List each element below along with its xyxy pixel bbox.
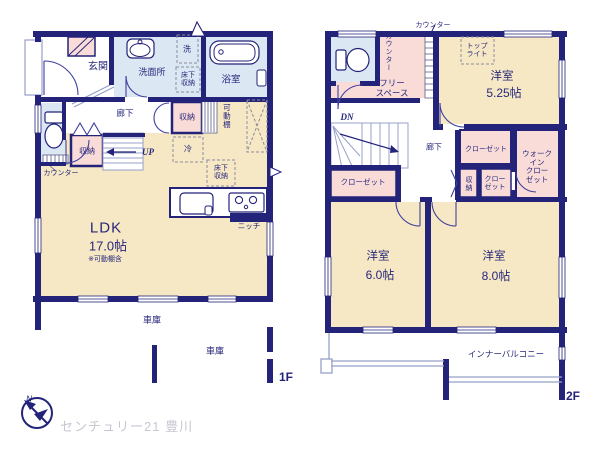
room-label-garage-front: 車庫 bbox=[206, 346, 224, 356]
stairs-up bbox=[103, 133, 143, 170]
floor-tag-1f: 1F bbox=[279, 371, 293, 385]
label-bedroom-525-size: 5.25帖 bbox=[486, 87, 521, 101]
label-toilet-counter: カウンター bbox=[44, 170, 79, 178]
room-label-washroom: 洗面所 bbox=[138, 67, 165, 77]
room-label-inner-balcony: インナーバルコニー bbox=[468, 350, 544, 360]
entrance-porch bbox=[25, 40, 42, 95]
label-fridge: 冷 bbox=[184, 144, 192, 153]
room-label-bedroom-525: 洋室 bbox=[491, 70, 514, 83]
label-storage-2f: 収納 bbox=[464, 176, 472, 192]
label-storage-hall: 収納 bbox=[79, 146, 95, 155]
label-ldk-note: ※可動棚含 bbox=[88, 256, 122, 264]
label-bedroom-80-size: 8.0帖 bbox=[482, 270, 511, 284]
label-niche: ニッチ bbox=[238, 223, 261, 232]
label-closet-upper: クローゼット bbox=[465, 146, 507, 154]
label-stairs-down: DN bbox=[341, 112, 354, 122]
room-label-garage-rear: 車庫 bbox=[143, 315, 161, 325]
north-arrow-icon bbox=[24, 400, 48, 424]
exterior-door-triangle bbox=[191, 22, 205, 36]
room-label-bedroom-80: 洋室 bbox=[483, 250, 506, 263]
label-closet-small: クロー ゼット bbox=[485, 176, 506, 192]
label-counter-side-2f: カウンター bbox=[384, 32, 392, 72]
washbasin-icon bbox=[127, 39, 154, 58]
room-label-bath: 浴室 bbox=[221, 76, 240, 87]
label-closet-left: クローゼット bbox=[341, 179, 386, 188]
room-label-ldk: LDK bbox=[90, 219, 122, 236]
stove-icon bbox=[229, 193, 264, 212]
floor-tag-2f: 2F bbox=[566, 390, 580, 404]
label-laundry: 洗 bbox=[183, 44, 191, 53]
compass-north-label: N bbox=[26, 395, 32, 404]
stairs-down bbox=[331, 123, 408, 168]
niche-marker bbox=[270, 167, 281, 177]
room-label-genkan: 玄関 bbox=[88, 61, 108, 73]
room-label-bedroom-60: 洋室 bbox=[367, 250, 390, 263]
label-stairs-up: UP bbox=[142, 147, 154, 157]
floorplan-canvas: 玄関 洗面所 洗 床下 収納 浴室 廊下 カウンター 収納 収納 可動棚 UP … bbox=[0, 0, 600, 450]
toilet-icon-2f bbox=[336, 49, 369, 72]
room-label-free-space: フリー スペース bbox=[376, 79, 409, 99]
label-bedroom-60-size: 6.0帖 bbox=[366, 269, 395, 283]
brand-logo-text: センチュリー21 豊川 bbox=[60, 416, 193, 435]
movable-shelf-hatch bbox=[202, 100, 217, 133]
label-skylight: トップ ライト bbox=[467, 43, 488, 59]
room-label-hallway-2f: 廊下 bbox=[426, 142, 442, 151]
label-underfloor-storage-kitchen: 床下 収納 bbox=[214, 165, 228, 181]
label-ldk-size: 17.0帖 bbox=[89, 240, 127, 255]
label-underfloor-storage-washroom: 床下 収納 bbox=[181, 72, 195, 88]
label-counter-top-2f: カウンター bbox=[416, 22, 451, 30]
room-label-hallway-1f: 廊下 bbox=[116, 109, 133, 119]
sink-icon bbox=[180, 193, 213, 215]
label-movable-shelf: 可動棚 bbox=[222, 103, 231, 129]
room-label-walk-in-closet: ウォーク イン クロー ゼット bbox=[522, 150, 552, 185]
toilet-icon-1f bbox=[45, 112, 63, 148]
label-storage-dining: 収納 bbox=[179, 112, 195, 121]
